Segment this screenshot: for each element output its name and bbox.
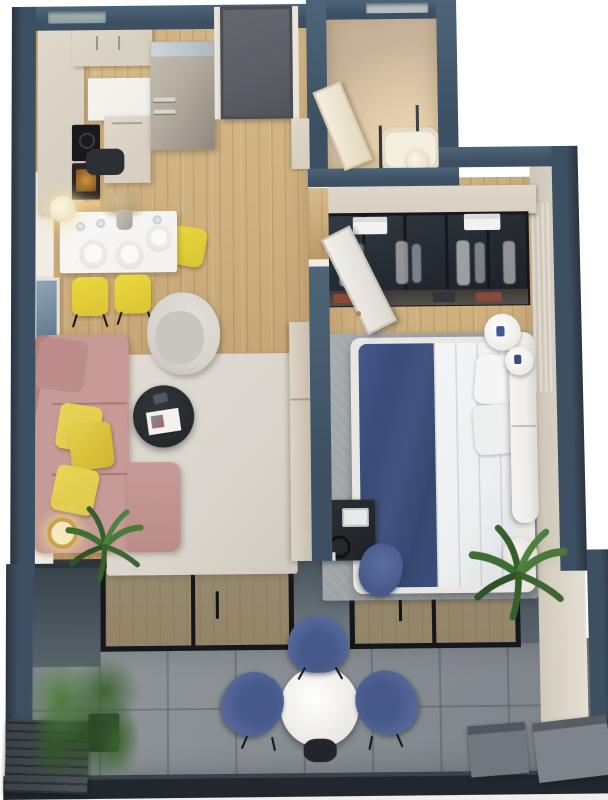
cabinet-handle-1: [96, 36, 98, 50]
refrigerator-handle-upper: [153, 98, 175, 102]
balcony-shrub: [28, 656, 140, 783]
door-mullion-living: [191, 564, 196, 648]
armchair-seat: [155, 311, 204, 365]
wall-left: [10, 7, 36, 577]
entry-door-frame-right: [292, 6, 299, 118]
shoe-item-3: [475, 292, 502, 302]
apartment-render: [0, 0, 608, 800]
cabinet-handle-2: [118, 36, 120, 50]
glass-1: [76, 222, 85, 231]
headboard-seam: [511, 425, 536, 427]
balcony-chair-top: [288, 615, 348, 673]
sofa-pillow-yellow-2: [67, 421, 115, 472]
utility-box-right-1: [467, 722, 529, 778]
wall-jut-top-right: [438, 146, 553, 167]
living-palm: [62, 494, 148, 591]
bathroom-window: [366, 3, 428, 14]
side-table-decor-2: [514, 355, 521, 364]
door-handle-living: [216, 591, 219, 618]
dining-chair-yellow-1: [72, 277, 109, 316]
pendant-lamp: [50, 196, 76, 223]
glass-3: [153, 215, 162, 224]
bag-item: [433, 292, 455, 302]
hanging-clothes-3: [396, 241, 409, 284]
table-vase: [116, 209, 132, 230]
cooktop-burner: [79, 133, 95, 149]
glass-2: [96, 219, 105, 228]
refrigerator: [150, 41, 215, 150]
hall-cabinet: [291, 118, 310, 169]
floorplan: [0, 0, 608, 800]
bedroom-door-jamb-bottom: [309, 259, 329, 266]
palm-fronds-svg: [461, 514, 572, 631]
plate-3: [147, 225, 171, 250]
wardrobe-towels-2: [464, 214, 501, 231]
sofa-pillow-pink: [34, 336, 89, 393]
hanging-clothes-5: [456, 240, 470, 285]
hanging-clothes-4: [412, 244, 422, 283]
plate-2: [116, 241, 142, 268]
bistro-table-base: [303, 739, 336, 763]
utility-box-right-2: [532, 715, 608, 783]
desk-laptop: [342, 508, 369, 527]
tv-cabinet-seam: [290, 398, 310, 400]
hanging-clothes-6: [474, 242, 485, 283]
plate-1: [80, 240, 106, 267]
kitchen-window: [48, 11, 106, 24]
dining-chair-yellow-2: [114, 274, 151, 313]
entry-door: [220, 6, 293, 119]
wardrobe-towels-1: [353, 217, 388, 235]
kitchen-upper-cabinets: [72, 28, 152, 67]
refrigerator-handle-lower: [153, 110, 175, 114]
door-handle-brass: [356, 311, 361, 316]
refrigerator-top-reflection: [151, 42, 213, 57]
tv-cabinet: [289, 322, 312, 561]
bath-faucet: [416, 105, 419, 131]
wall-balcony-right: [587, 549, 608, 729]
wall-divider-lower: [309, 264, 333, 561]
wall-bathroom-bottom: [308, 167, 459, 187]
side-table-decor: [496, 326, 504, 336]
magazine-print: [151, 415, 165, 429]
dining-chair-dark: [86, 149, 124, 176]
base-cabinet-handles: [112, 122, 142, 124]
palm-fronds-svg: [62, 494, 148, 591]
kitchen-island-counter: [88, 78, 158, 121]
hanging-clothes-7: [503, 241, 516, 284]
bedroom-palm: [461, 514, 572, 631]
